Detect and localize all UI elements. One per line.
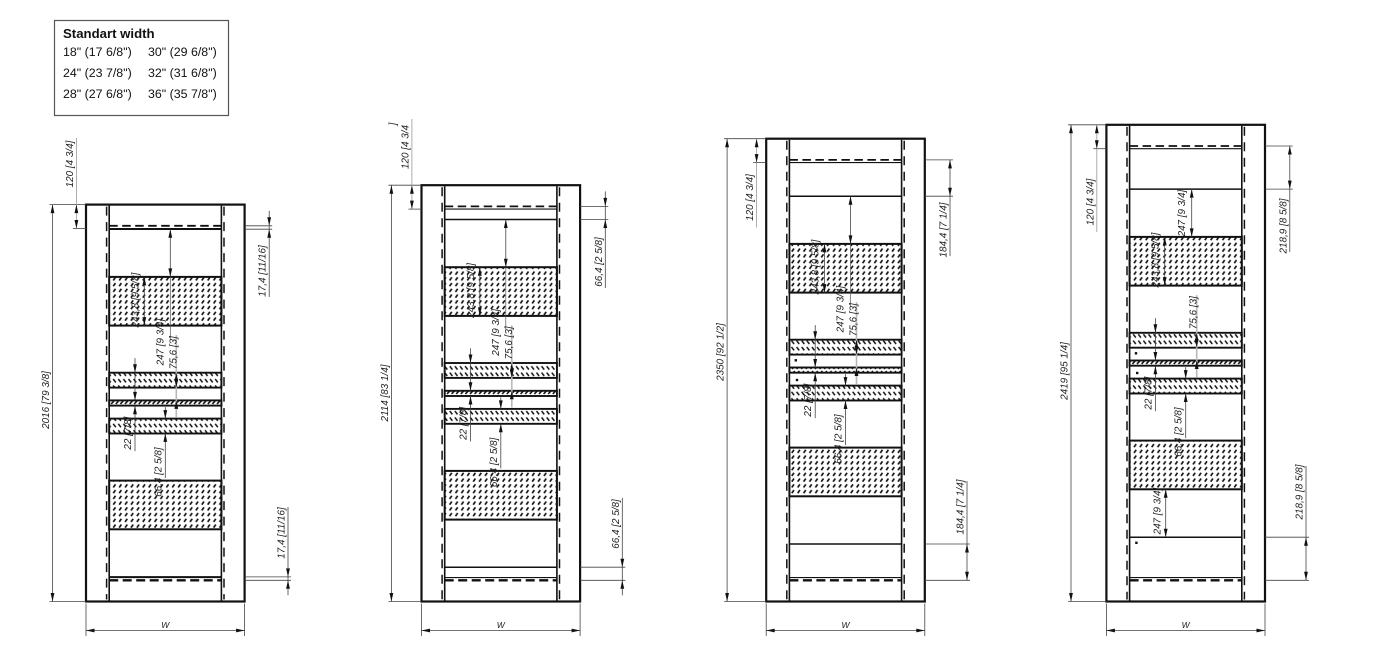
svg-text:24" (23 7/8"): 24" (23 7/8") xyxy=(63,66,132,80)
svg-text:247 [9 3/4]: 247 [9 3/4] xyxy=(1153,488,1164,536)
svg-text:22 [7/8]: 22 [7/8] xyxy=(1143,376,1154,410)
svg-text:247 [9 3/4]: 247 [9 3/4] xyxy=(1177,190,1188,238)
svg-text:18" (17 6/8"): 18" (17 6/8") xyxy=(63,45,132,59)
svg-text:66,4 [2 5/8]: 66,4 [2 5/8] xyxy=(1174,407,1185,457)
svg-text:36" (35 7/8"): 36" (35 7/8") xyxy=(148,87,217,101)
svg-text:30" (29 6/8"): 30" (29 6/8") xyxy=(148,45,217,59)
svg-text:2419 [95 1/4]: 2419 [95 1/4] xyxy=(1060,342,1071,401)
svg-text:28" (27 6/8"): 28" (27 6/8") xyxy=(63,87,132,101)
svg-text:66,4 [2 5/8]: 66,4 [2 5/8] xyxy=(594,237,605,287)
svg-text:Standart width: Standart width xyxy=(63,26,155,41)
svg-text:218,9 [8 5/8]: 218,9 [8 5/8] xyxy=(1278,198,1289,254)
svg-text:]: ] xyxy=(388,122,399,126)
svg-text:32" (31 6/8"): 32" (31 6/8") xyxy=(148,66,217,80)
svg-text:W: W xyxy=(161,620,170,630)
svg-text:W: W xyxy=(841,620,850,630)
svg-text:2114 [83 1/4]: 2114 [83 1/4] xyxy=(380,364,391,422)
svg-text:66,4 [2 5/8]: 66,4 [2 5/8] xyxy=(489,437,500,487)
svg-text:120 [4 3/4]: 120 [4 3/4] xyxy=(745,174,756,221)
svg-text:243,8 [9 5/8]: 243,8 [9 5/8] xyxy=(130,272,141,328)
svg-text:120 [4 3/4]: 120 [4 3/4] xyxy=(1085,178,1096,225)
svg-text:75,6 [3]: 75,6 [3] xyxy=(1189,296,1200,329)
svg-text:75,6 [3]: 75,6 [3] xyxy=(168,336,179,369)
svg-text:17,4 [11/16]: 17,4 [11/16] xyxy=(277,507,288,559)
svg-text:22 [7/8]: 22 [7/8] xyxy=(459,407,470,441)
svg-text:247 [9 3/4]: 247 [9 3/4] xyxy=(836,286,847,334)
svg-text:W: W xyxy=(497,620,506,630)
svg-text:218,9 [8 5/8]: 218,9 [8 5/8] xyxy=(1295,464,1306,520)
svg-text:66,4 [2 5/8]: 66,4 [2 5/8] xyxy=(834,414,845,464)
svg-text:2350 [92 1/2]: 2350 [92 1/2] xyxy=(716,323,727,382)
svg-text:75,6 [3]: 75,6 [3] xyxy=(849,303,860,336)
svg-text:W: W xyxy=(1182,620,1191,630)
svg-text:22 [7/8]: 22 [7/8] xyxy=(803,383,814,417)
svg-text:247 [9 3/4]: 247 [9 3/4] xyxy=(155,319,166,367)
svg-text:243,8 [9 5/8]: 243,8 [9 5/8] xyxy=(466,263,477,319)
svg-text:66,4 [2 5/8]: 66,4 [2 5/8] xyxy=(611,499,622,549)
svg-text:17,4 [11/16]: 17,4 [11/16] xyxy=(258,245,269,297)
svg-text:22 [7/8]: 22 [7/8] xyxy=(123,416,134,450)
svg-text:184,4 [7 1/4]: 184,4 [7 1/4] xyxy=(956,479,967,534)
svg-text:120 [4 3/4]: 120 [4 3/4] xyxy=(65,140,76,187)
svg-text:2016 [79 3/8]: 2016 [79 3/8] xyxy=(41,371,52,430)
svg-text:247 [9 3/4]: 247 [9 3/4] xyxy=(491,309,502,357)
svg-text:120 [4 3/4: 120 [4 3/4 xyxy=(400,125,411,169)
svg-text:75,6 [3]: 75,6 [3] xyxy=(504,326,515,359)
svg-text:243,8 [9 5/8]: 243,8 [9 5/8] xyxy=(1151,232,1162,288)
svg-text:243,8 [9 5/8]: 243,8 [9 5/8] xyxy=(811,239,822,295)
svg-text:184,4 [7 1/4]: 184,4 [7 1/4] xyxy=(939,202,950,257)
svg-text:66,4 [2 5/8]: 66,4 [2 5/8] xyxy=(153,447,164,497)
